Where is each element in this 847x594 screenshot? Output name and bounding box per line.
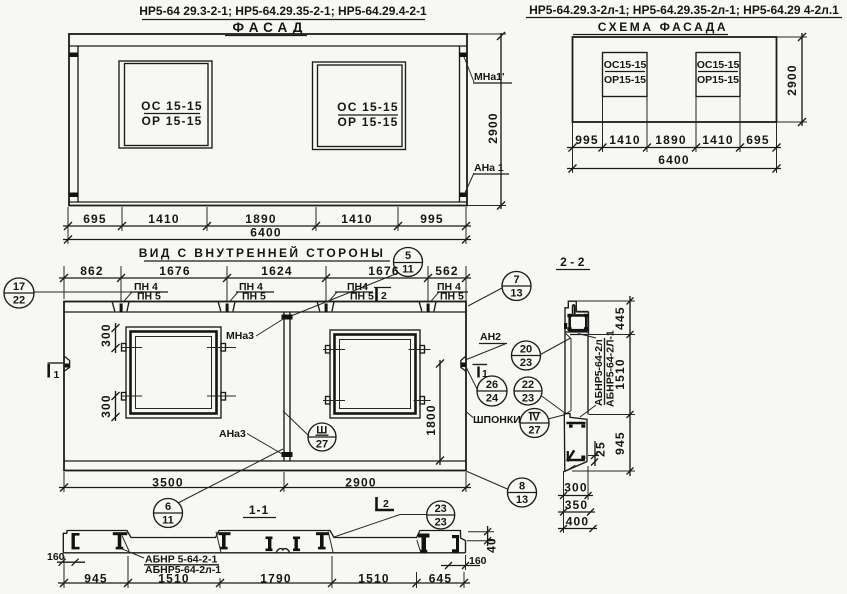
svg-text:ОР 15-15: ОР 15-15 [338, 115, 399, 129]
svg-text:2900: 2900 [345, 476, 377, 490]
svg-text:40: 40 [485, 537, 499, 553]
svg-text:20: 20 [520, 344, 532, 356]
svg-text:ОС15-15: ОС15-15 [604, 59, 647, 71]
svg-text:МНа3: МНа3 [226, 330, 254, 342]
svg-text:1890: 1890 [655, 133, 687, 147]
svg-text:695: 695 [83, 212, 107, 226]
svg-text:1676: 1676 [159, 264, 191, 278]
svg-text:ОС 15-15: ОС 15-15 [141, 99, 203, 113]
svg-text:НР5-64.29.3-2л-1; НР5-64.29.35: НР5-64.29.3-2л-1; НР5-64.29.35-2л-1; НР5… [529, 3, 839, 17]
svg-text:6400: 6400 [658, 153, 690, 167]
svg-text:ОС15-15: ОС15-15 [697, 59, 740, 71]
svg-text:ШПОНКИ: ШПОНКИ [473, 414, 521, 426]
svg-text:1410: 1410 [702, 133, 734, 147]
svg-text:АНа3: АНа3 [219, 428, 246, 440]
svg-text:5: 5 [405, 250, 411, 262]
svg-text:АБНР5-64-2л: АБНР5-64-2л [593, 339, 605, 406]
svg-text:АНа 1: АНа 1 [474, 162, 504, 174]
svg-text:МНа1': МНа1' [474, 71, 505, 83]
svg-text:АН2: АН2 [480, 331, 501, 343]
svg-text:862: 862 [80, 264, 104, 278]
svg-text:ОР 15-15: ОР 15-15 [142, 114, 203, 128]
svg-text:ПН 5: ПН 5 [242, 291, 266, 303]
svg-text:ВИД С ВНУТРЕННЕЙ СТОРОНЫ: ВИД С ВНУТРЕННЕЙ СТОРОНЫ [139, 245, 386, 260]
svg-text:1676: 1676 [368, 264, 400, 278]
svg-text:1-1: 1-1 [249, 503, 269, 517]
svg-text:ПН 5: ПН 5 [440, 291, 464, 303]
svg-text:7: 7 [513, 274, 519, 286]
svg-text:645: 645 [429, 572, 453, 586]
svg-text:300: 300 [99, 394, 113, 418]
svg-text:2-2: 2-2 [560, 255, 588, 269]
svg-text:2900: 2900 [486, 112, 500, 144]
svg-text:1510: 1510 [158, 572, 190, 586]
svg-text:1410: 1410 [341, 212, 373, 226]
svg-text:1510: 1510 [358, 572, 390, 586]
svg-text:11: 11 [162, 515, 174, 527]
svg-text:13: 13 [516, 494, 528, 506]
svg-text:13: 13 [510, 288, 522, 300]
svg-text:СХЕМА ФАСАДА: СХЕМА ФАСАДА [598, 20, 728, 34]
svg-text:300: 300 [564, 481, 588, 495]
svg-text:23: 23 [435, 503, 447, 515]
svg-text:1890: 1890 [245, 212, 277, 226]
svg-text:1624: 1624 [261, 264, 293, 278]
svg-text:ОР15-15: ОР15-15 [697, 74, 739, 86]
svg-text:445: 445 [613, 306, 627, 330]
svg-text:1410: 1410 [609, 133, 641, 147]
svg-text:995: 995 [420, 212, 444, 226]
svg-text:2: 2 [381, 290, 387, 302]
svg-text:ОС 15-15: ОС 15-15 [337, 100, 399, 114]
svg-text:ПН 5: ПН 5 [137, 291, 161, 303]
svg-text:160: 160 [47, 551, 65, 563]
svg-text:350: 350 [565, 498, 589, 512]
svg-text:27: 27 [528, 425, 540, 437]
svg-text:8: 8 [519, 481, 525, 493]
svg-text:6400: 6400 [250, 226, 282, 240]
svg-text:300: 300 [99, 323, 113, 347]
svg-text:22: 22 [522, 379, 534, 391]
svg-text:1510: 1510 [613, 358, 627, 390]
svg-text:IV: IV [529, 412, 540, 424]
svg-text:1410: 1410 [148, 212, 180, 226]
svg-text:2900: 2900 [785, 64, 799, 96]
svg-text:ОР15-15: ОР15-15 [604, 74, 646, 86]
svg-text:945: 945 [84, 572, 108, 586]
svg-text:НР5-64 29.3-2-1; НР5-64.29.35-: НР5-64 29.3-2-1; НР5-64.29.35-2-1; НР5-6… [139, 4, 427, 18]
svg-text:6: 6 [165, 501, 171, 513]
svg-text:3500: 3500 [152, 476, 184, 490]
svg-text:24: 24 [486, 393, 499, 405]
svg-text:2: 2 [383, 498, 389, 510]
svg-text:ФАСАД: ФАСАД [233, 20, 308, 35]
svg-text:26: 26 [486, 379, 498, 391]
svg-text:1790: 1790 [260, 572, 292, 586]
svg-text:695: 695 [746, 133, 770, 147]
svg-text:23: 23 [522, 393, 534, 405]
svg-text:562: 562 [435, 264, 459, 278]
svg-text:1: 1 [54, 369, 60, 381]
svg-text:27: 27 [316, 439, 328, 451]
svg-text:22: 22 [13, 295, 25, 307]
svg-text:17: 17 [13, 281, 25, 293]
svg-text:25: 25 [594, 441, 608, 457]
svg-text:995: 995 [575, 133, 599, 147]
svg-text:ПН 5: ПН 5 [350, 291, 374, 303]
svg-text:160: 160 [469, 555, 487, 567]
svg-text:23: 23 [520, 357, 532, 369]
svg-text:945: 945 [613, 431, 627, 455]
svg-text:11: 11 [402, 264, 414, 276]
svg-text:400: 400 [566, 515, 590, 529]
svg-text:1800: 1800 [424, 404, 438, 436]
svg-text:23: 23 [435, 517, 447, 529]
